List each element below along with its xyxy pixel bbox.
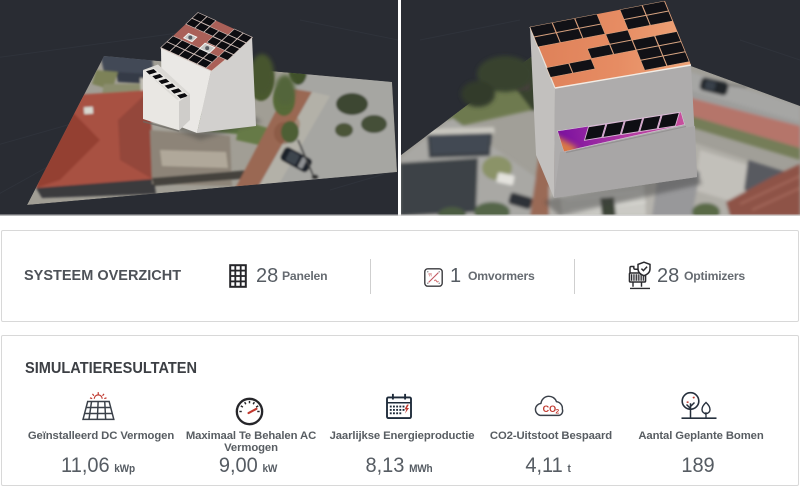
svg-text:CO: CO — [543, 404, 557, 414]
svg-text:2: 2 — [556, 409, 560, 416]
